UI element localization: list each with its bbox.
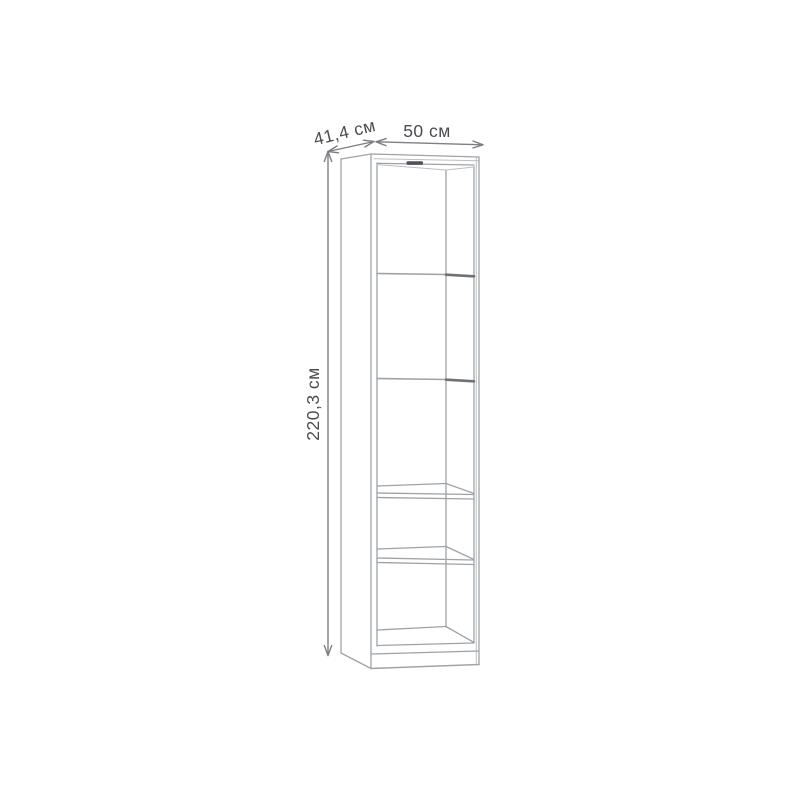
carcass-outline xyxy=(341,154,479,669)
width-dimension-line xyxy=(376,142,483,145)
shelf-3 xyxy=(377,484,474,500)
depth-dimension-label: 41,4 см xyxy=(312,115,378,149)
diagram-page: 220,3 см 41,4 см 50 см xyxy=(0,0,800,800)
depth-dimension: 41,4 см xyxy=(312,115,378,153)
carcass-interior-edges xyxy=(377,163,474,646)
height-dimension: 220,3 см xyxy=(303,152,332,656)
width-dimension: 50 см xyxy=(376,121,483,148)
top-panel-detail xyxy=(377,161,474,170)
bottom-panel xyxy=(371,627,479,655)
height-dimension-label: 220,3 см xyxy=(303,367,323,440)
bookcase-dimension-diagram: 220,3 см 41,4 см 50 см xyxy=(0,0,800,800)
bookcase-drawing xyxy=(341,154,479,669)
shelf-1 xyxy=(377,274,474,277)
shelf-4 xyxy=(377,547,474,565)
shelf-2 xyxy=(377,379,474,382)
top-vent-slot xyxy=(407,161,424,165)
width-dimension-label: 50 см xyxy=(403,121,451,141)
dimension-annotations: 220,3 см 41,4 см 50 см xyxy=(303,115,483,655)
